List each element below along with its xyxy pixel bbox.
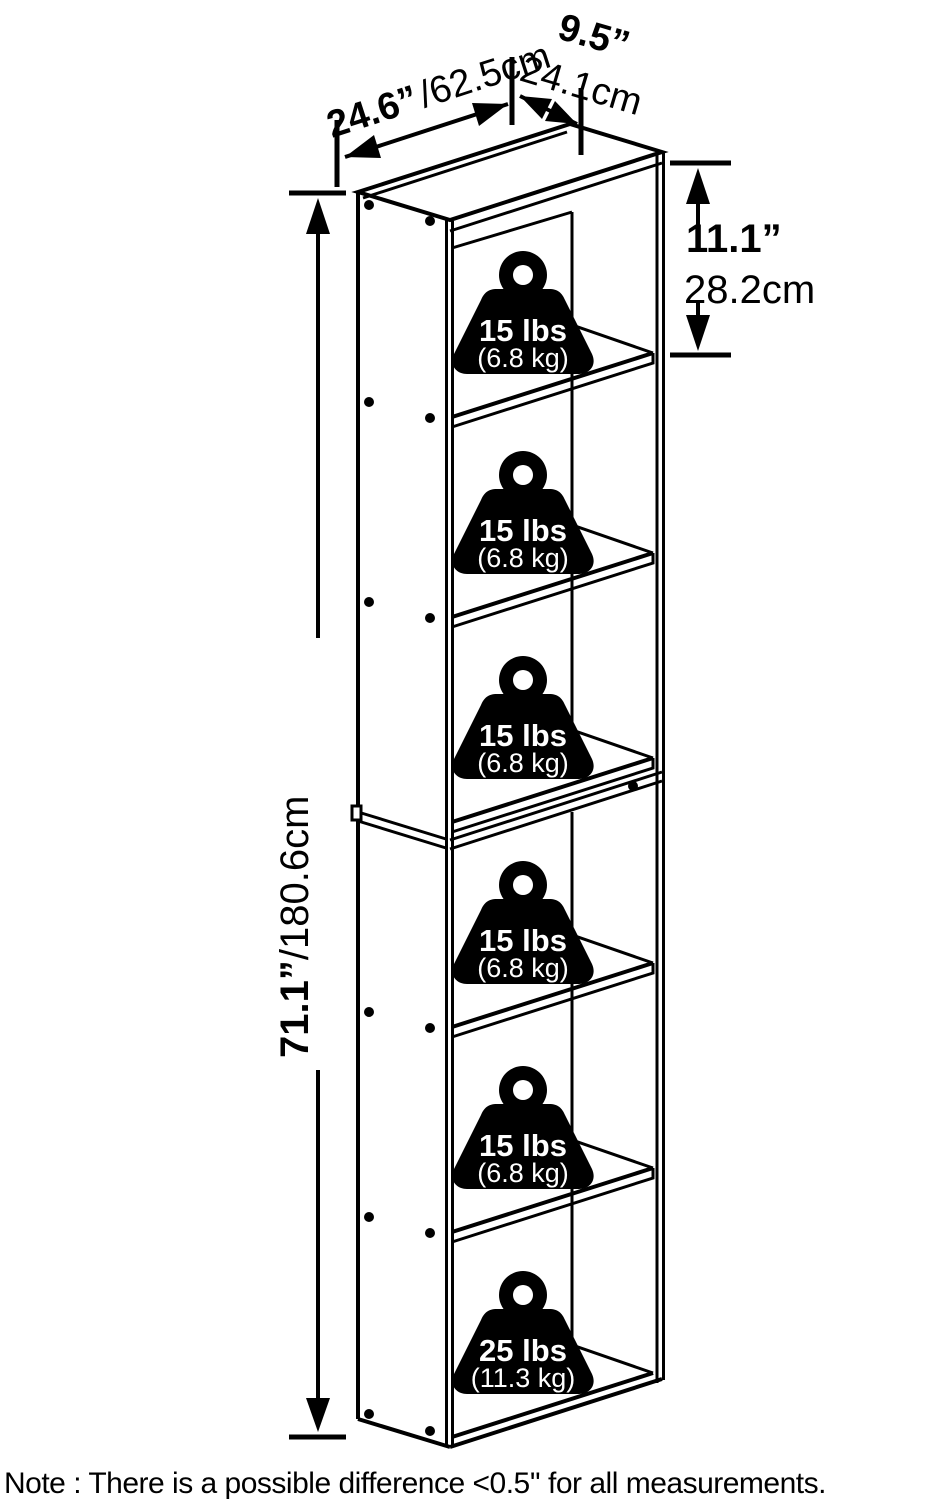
stack-junction-seam (352, 772, 662, 849)
compartment-height-dimension: 11.1” 28.2cm (670, 163, 815, 355)
compartment-inches-label: 11.1” (686, 217, 782, 261)
left-side-panel (358, 192, 453, 1447)
weight-kg-label: (6.8 kg) (477, 343, 569, 373)
depth-inches-label: 9.5” (554, 6, 635, 66)
weight-kg-label: (6.8 kg) (477, 543, 569, 573)
compartment-cm-label: 28.2cm (684, 268, 815, 312)
top-panel (358, 124, 662, 231)
note-text: Note : There is a possible difference <0… (4, 1467, 826, 1500)
weight-kg-label: (11.3 kg) (471, 1363, 576, 1393)
weight-kg-label: (6.8 kg) (477, 748, 569, 778)
screw-dots (364, 200, 638, 1436)
weight-kg-label: (6.8 kg) (477, 1158, 569, 1188)
total-height-label: 71.1”/180.6cm (273, 796, 317, 1058)
weight-kg-label: (6.8 kg) (477, 953, 569, 983)
total-height-dimension: 71.1”/180.6cm (273, 193, 346, 1437)
diagram-page: 15 lbs (6.8 kg) 15 lbs (6.8 kg) 15 lbs (… (0, 0, 950, 1500)
right-side-panel-edge (657, 152, 664, 1383)
bookshelf-line-drawing: 15 lbs (6.8 kg) 15 lbs (6.8 kg) 15 lbs (… (0, 0, 950, 1500)
width-dimension-label: 24.6”/62.5cm (322, 35, 556, 147)
depth-dimension: 9.5” 24.1cm (515, 6, 646, 155)
